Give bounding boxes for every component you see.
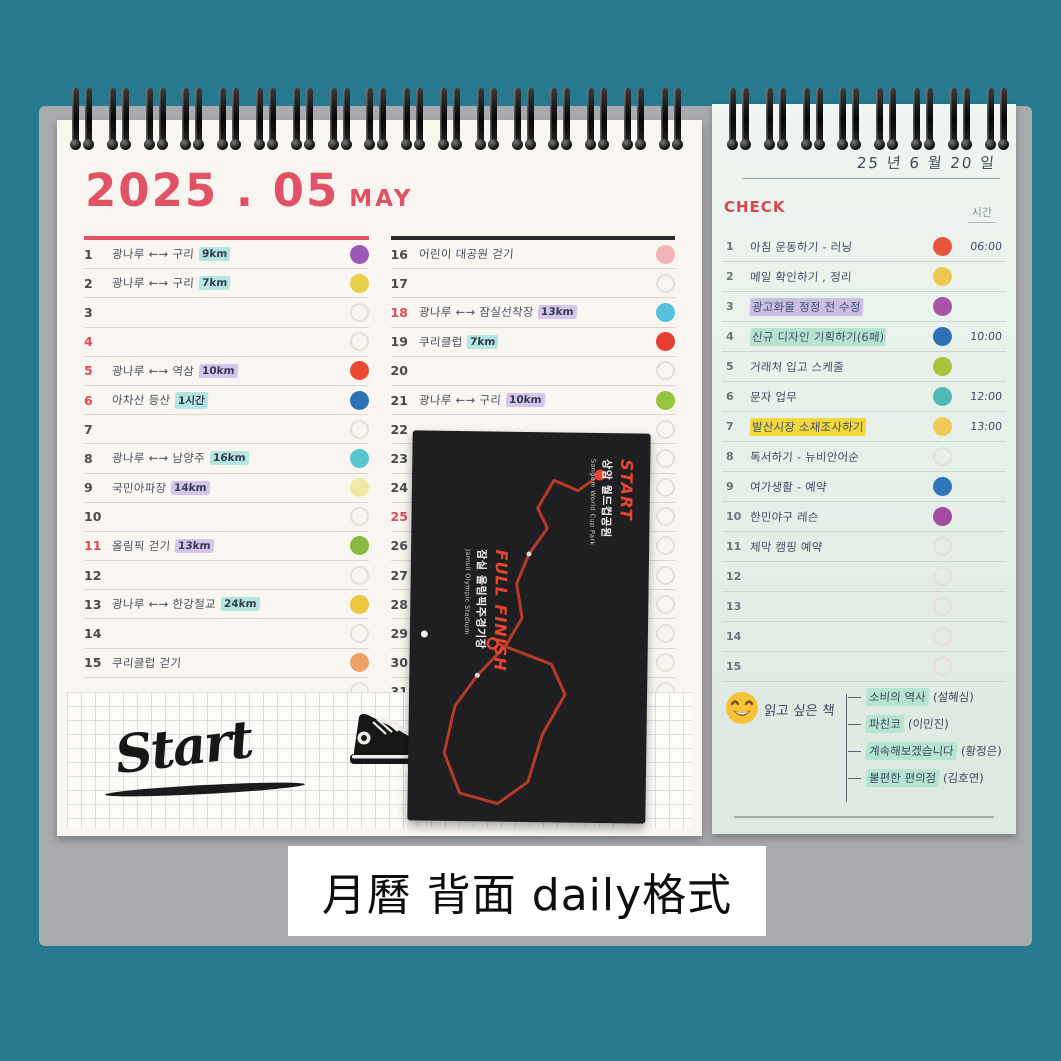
ring-bar [366, 88, 373, 144]
ring-bar [343, 88, 350, 144]
empty-circle [933, 537, 952, 556]
calendar-entry-text: 광나루 ←→ 구리 [111, 246, 194, 262]
binding-ring [146, 88, 168, 150]
distance-highlight-badge: 1시간 [175, 392, 209, 409]
calendar-day-number: 3 [84, 305, 112, 320]
colored-sticker-dot [933, 237, 952, 256]
daily-row: 2메일 확인하기 , 정리 [722, 262, 1006, 292]
ring-bar [416, 88, 423, 144]
calendar-entry-text: 아차산 등산 [111, 392, 170, 408]
daily-row: 8독서하기 - 뉴비안어순 [722, 442, 1006, 472]
empty-circle [656, 595, 675, 614]
ring-bar [766, 88, 773, 144]
colored-sticker-dot [933, 357, 952, 376]
daily-entry-text: 문자 업무 [749, 389, 797, 405]
calendar-row: 18광나루 ←→ 잠실선착장13km [391, 298, 676, 327]
ring-bar [674, 88, 681, 144]
daily-row: 10한민야구 레슨 [722, 502, 1006, 532]
calendar-entry-text: 광나루 ←→ 남양주 [111, 450, 205, 466]
daily-row: 12 [722, 562, 1006, 592]
empty-circle [933, 657, 952, 676]
empty-circle [656, 478, 675, 497]
binding-ring [587, 88, 609, 150]
daily-entry-text: 독서하기 - 뉴비안어순 [749, 449, 859, 465]
calendar-day-number: 19 [391, 334, 419, 349]
colored-sticker-dot [656, 332, 675, 351]
binding-ring [839, 88, 861, 150]
daily-row-number: 3 [726, 300, 750, 313]
empty-circle [656, 624, 675, 643]
ring-bar [661, 88, 668, 144]
ring-bar [987, 88, 994, 144]
daily-time-value: 12:00 [951, 390, 1002, 403]
calendar-row: 14 [84, 619, 369, 648]
colored-sticker-dot [350, 245, 369, 264]
calendar-year-month: 2025 . 05 [85, 164, 339, 217]
binding-ring [913, 88, 935, 150]
daily-entry-text: 제막 캠핑 예약 [749, 539, 823, 555]
calendar-day-number: 16 [391, 247, 419, 262]
colored-sticker-dot [933, 387, 952, 406]
colored-sticker-dot [350, 361, 369, 380]
calendar-month-name: MAY [349, 186, 413, 212]
calendar-entry-text: 올림픽 걷기 [111, 538, 170, 554]
daily-row-number: 12 [726, 570, 750, 583]
daily-entry-text: 한민야구 레슨 [749, 509, 819, 525]
binding-ring [219, 88, 241, 150]
daily-row-number: 13 [726, 600, 750, 613]
ring-bar [637, 88, 644, 144]
empty-circle [656, 449, 675, 468]
calendar-row: 1광나루 ←→ 구리9km [84, 240, 369, 269]
colored-sticker-dot [656, 303, 675, 322]
daily-entry-text: 광고화물 정정 전 수정 [749, 298, 863, 316]
ring-bar [195, 88, 202, 144]
ring-bar [876, 88, 883, 144]
calendar-entry-text: 광나루 ←→ 잠실선착장 [418, 304, 534, 320]
daily-entry-text: 발산시장 소재조사하기 [749, 418, 866, 436]
calendar-row: 2광나루 ←→ 구리7km [84, 269, 369, 298]
empty-circle [350, 624, 369, 643]
calendar-day-number: 4 [84, 334, 112, 349]
ring-bar [122, 88, 129, 144]
ring-bar [306, 88, 313, 144]
calendar-day-number: 8 [84, 451, 112, 466]
calendar-day-number: 12 [84, 568, 112, 583]
ring-bar [742, 88, 749, 144]
distance-highlight-badge: 24km [220, 597, 260, 611]
binding-ring [624, 88, 646, 150]
daily-row-number: 2 [726, 270, 750, 283]
colored-sticker-dot [933, 417, 952, 436]
book-title: 소비의 역사 [865, 688, 929, 706]
binding-ring [876, 88, 898, 150]
colored-sticker-dot [350, 536, 369, 555]
calendar-entry-text: 광나루 ←→ 역삼 [111, 363, 194, 379]
bracket-tick [848, 697, 861, 698]
ring-bar [852, 88, 859, 144]
race-card-rotated-content: START 상암 월드컵공원 Sangam World Cup Park FUL… [407, 430, 650, 823]
binding-ring [729, 88, 751, 150]
colored-sticker-dot [350, 653, 369, 672]
calendar-entry-text: 광나루 ←→ 구리 [418, 392, 501, 408]
ring-bar [403, 88, 410, 144]
calendar-day-number: 6 [84, 393, 112, 408]
empty-circle [933, 567, 952, 586]
binding-ring [403, 88, 425, 150]
calendar-entry-text: 광나루 ←→ 한강철교 [111, 596, 216, 612]
laughing-emoji-sticker [724, 690, 760, 730]
book-author: (이민진) [907, 716, 949, 732]
ring-bar [950, 88, 957, 144]
race-finish-block: FULL FINISH 잠실 올림픽주경기장 Jamsil Olympic St… [462, 549, 511, 672]
ring-bar [293, 88, 300, 144]
colored-sticker-dot [656, 245, 675, 264]
caption-box: 月曆 背面 daily格式 [288, 846, 766, 936]
calendar-entry-text: 쿠리클럽 걷기 [111, 655, 181, 671]
empty-circle [656, 274, 675, 293]
race-start-block: START 상암 월드컵공원 Sangam World Cup Park [588, 459, 636, 546]
calendar-row: 10 [84, 503, 369, 532]
empty-circle [656, 536, 675, 555]
colored-sticker-dot [350, 478, 369, 497]
reading-list-section: 읽고 싶은 책 소비의 역사(설혜심)파친코(이민진)계속해보겠습니다(황정은)… [722, 682, 1008, 822]
colored-sticker-dot [656, 391, 675, 410]
calendar-row: 8광나루 ←→ 남양주16km [84, 444, 369, 473]
daily-row: 7발산시장 소재조사하기13:00 [722, 412, 1006, 442]
empty-circle [656, 361, 675, 380]
daily-entry-text: 아침 운동하기 - 러닝 [749, 239, 852, 255]
book-title: 계속해보겠습니다 [865, 742, 957, 760]
distance-highlight-badge: 14km [171, 481, 211, 495]
empty-circle [656, 566, 675, 585]
daily-planner-page: 25 년 6 월 20 일 CHECK 시간 1아침 운동하기 - 러닝06:0… [712, 104, 1016, 834]
calendar-column-1-15: 1광나루 ←→ 구리9km2광나루 ←→ 구리7km345광나루 ←→ 역삼10… [84, 236, 369, 707]
distance-highlight-badge: 13km [175, 539, 215, 553]
distance-highlight-badge: 13km [538, 305, 578, 319]
colored-sticker-dot [350, 274, 369, 293]
distance-highlight-badge: 7km [467, 335, 499, 349]
daily-check-label: CHECK [724, 198, 785, 216]
daily-entry-text: 거래처 입고 스케줄 [749, 359, 844, 375]
ring-bar [563, 88, 570, 144]
race-start-label: START [616, 459, 636, 546]
distance-highlight-badge: 10km [505, 393, 545, 407]
empty-circle [350, 420, 369, 439]
calendar-row: 20 [391, 357, 676, 386]
calendar-day-number: 9 [84, 480, 112, 495]
book-item: 소비의 역사(설혜심) [848, 688, 973, 706]
caption-text: 月曆 背面 daily格式 [322, 859, 732, 923]
book-author: (황정은) [960, 743, 1002, 759]
empty-circle [933, 597, 952, 616]
calendar-day-number: 15 [84, 655, 112, 670]
ring-bar [490, 88, 497, 144]
distance-highlight-badge: 10km [199, 364, 239, 378]
daily-entry-text: 여가생활 - 예약 [749, 479, 827, 495]
daily-row-number: 1 [726, 240, 750, 253]
calendar-row: 17 [391, 269, 676, 298]
calendar-row: 6아차산 등산1시간 [84, 386, 369, 415]
binding-ring [514, 88, 536, 150]
race-start-place-en: Sangam World Cup Park [588, 459, 597, 546]
calendar-day-number: 1 [84, 247, 112, 262]
calendar-row: 12 [84, 561, 369, 590]
calendar-day-number: 21 [391, 393, 419, 408]
ring-bar [219, 88, 226, 144]
empty-circle [350, 332, 369, 351]
calendar-title: 2025 . 05MAY [85, 164, 413, 217]
binding-ring [330, 88, 352, 150]
daily-row: 13 [722, 592, 1006, 622]
bracket-tick [848, 724, 861, 725]
calendar-row: 15쿠리클럽 걷기 [84, 649, 369, 678]
ring-bar [527, 88, 534, 144]
binding-ring [550, 88, 572, 150]
ring-bar [269, 88, 276, 144]
calendar-day-number: 10 [84, 509, 112, 524]
ring-bar [839, 88, 846, 144]
ring-bar [440, 88, 447, 144]
calendar-entry-text: 어린이 대공원 걷기 [418, 246, 514, 262]
book-item: 불편한 편의점(김호연) [848, 769, 984, 787]
ring-bar [729, 88, 736, 144]
daily-entry-text: 메일 확인하기 , 정리 [749, 269, 852, 285]
empty-circle [933, 627, 952, 646]
calendar-day-number: 17 [391, 276, 419, 291]
binding-ring [256, 88, 278, 150]
reading-list-bracket [846, 694, 847, 802]
empty-circle [350, 566, 369, 585]
colored-sticker-dot [933, 507, 952, 526]
daily-row-number: 5 [726, 360, 750, 373]
race-course-card: START 상암 월드컵공원 Sangam World Cup Park FUL… [407, 430, 650, 823]
ring-bar [159, 88, 166, 144]
binding-ring [661, 88, 683, 150]
daily-row-number: 14 [726, 630, 750, 643]
daily-row-number: 15 [726, 660, 750, 673]
ring-bar [926, 88, 933, 144]
ring-bar [146, 88, 153, 144]
colored-sticker-dot [933, 327, 952, 346]
ring-bar [477, 88, 484, 144]
daily-row: 15 [722, 652, 1006, 682]
ring-bar [182, 88, 189, 144]
daily-time-column-label: 시간 [968, 204, 996, 223]
calendar-row: 9국민아파장14km [84, 474, 369, 503]
ring-bar [453, 88, 460, 144]
race-finish-label: FULL FINISH [490, 549, 511, 671]
ring-bar [232, 88, 239, 144]
ring-bar [85, 88, 92, 144]
calendar-day-number: 13 [84, 597, 112, 612]
empty-circle [933, 447, 952, 466]
binding-ring [109, 88, 131, 150]
daily-row: 14 [722, 622, 1006, 652]
colored-sticker-dot [933, 297, 952, 316]
binding-ring [440, 88, 462, 150]
ring-bar [963, 88, 970, 144]
ring-bar [72, 88, 79, 144]
calendar-day-number: 18 [391, 305, 419, 320]
calendar-row: 7 [84, 415, 369, 444]
book-title: 불편한 편의점 [865, 769, 939, 787]
daily-time-value: 13:00 [951, 420, 1002, 433]
colored-sticker-dot [350, 391, 369, 410]
race-start-place-ko: 상암 월드컵공원 [598, 459, 615, 546]
book-author: (김호연) [943, 770, 985, 786]
distance-highlight-badge: 16km [210, 451, 250, 465]
binding-ring [477, 88, 499, 150]
ring-bar [779, 88, 786, 144]
empty-circle [656, 420, 675, 439]
daily-row: 6문자 업무12:00 [722, 382, 1006, 412]
race-finish-place-en: Jamsil Olympic Stadium [462, 549, 472, 671]
calendar-row: 19쿠리클럽7km [391, 328, 676, 357]
calendar-day-number: 20 [391, 363, 419, 378]
binding-ring [72, 88, 94, 150]
calendar-row: 13광나루 ←→ 한강철교24km [84, 590, 369, 619]
binding-ring [987, 88, 1009, 150]
reading-list-title: 읽고 싶은 책 [763, 699, 835, 719]
daily-row-number: 6 [726, 390, 750, 403]
daily-entry-text: 신규 디자인 기획하기(6페) [749, 328, 887, 346]
daily-date-handwritten: 25 년 6 월 20 일 [856, 152, 997, 173]
daily-row: 9여가생활 - 예약 [722, 472, 1006, 502]
colored-sticker-dot [350, 449, 369, 468]
empty-circle [656, 653, 675, 672]
calendar-day-number: 11 [84, 538, 112, 553]
ring-bar [330, 88, 337, 144]
bracket-tick [848, 751, 861, 752]
ring-bar [624, 88, 631, 144]
race-finish-place-ko: 잠실 올림픽주경기장 [472, 549, 490, 671]
ring-bar [587, 88, 594, 144]
calendar-day-number: 7 [84, 422, 112, 437]
daily-row: 1아침 운동하기 - 러닝06:00 [722, 232, 1006, 262]
calendar-day-number: 2 [84, 276, 112, 291]
ring-bar [803, 88, 810, 144]
daily-row-number: 11 [726, 540, 750, 553]
colored-sticker-dot [350, 595, 369, 614]
ring-bar [256, 88, 263, 144]
daily-bottom-rule [734, 816, 994, 818]
bracket-tick [848, 778, 861, 779]
daily-row: 4신규 디자인 기획하기(6페)10:00 [722, 322, 1006, 352]
daily-row-number: 8 [726, 450, 750, 463]
distance-highlight-badge: 9km [199, 247, 231, 261]
calendar-row: 4 [84, 328, 369, 357]
calendar-day-number: 5 [84, 363, 112, 378]
daily-row-number: 10 [726, 510, 750, 523]
daily-check-list: 1아침 운동하기 - 러닝06:002메일 확인하기 , 정리3광고화물 정정 … [722, 232, 1006, 682]
daily-time-value: 10:00 [951, 330, 1002, 343]
daily-row-number: 9 [726, 480, 750, 493]
ring-bar [514, 88, 521, 144]
empty-circle [350, 507, 369, 526]
ring-bar [1000, 88, 1007, 144]
binding-ring [803, 88, 825, 150]
ring-bar [109, 88, 116, 144]
calendar-row: 5광나루 ←→ 역삼10km [84, 357, 369, 386]
colored-sticker-dot [933, 477, 952, 496]
daily-date-underline [742, 178, 1000, 179]
binding-ring [766, 88, 788, 150]
binding-ring [950, 88, 972, 150]
colored-sticker-dot [933, 267, 952, 286]
ring-bar [889, 88, 896, 144]
calendar-row: 21광나루 ←→ 구리10km [391, 386, 676, 415]
binding-ring [182, 88, 204, 150]
calendar-entry-text: 국민아파장 [111, 480, 167, 496]
calendar-row: 3 [84, 298, 369, 327]
empty-circle [350, 303, 369, 322]
distance-highlight-badge: 7km [199, 276, 231, 290]
book-item: 계속해보겠습니다(황정은) [848, 742, 1001, 760]
calendar-entry-text: 쿠리클럽 [418, 334, 463, 350]
empty-circle [656, 507, 675, 526]
calendar-row: 16어린이 대공원 걷기 [391, 240, 676, 269]
daily-row-number: 7 [726, 420, 750, 433]
book-title: 파친코 [865, 715, 904, 733]
daily-row: 3광고화물 정정 전 수정 [722, 292, 1006, 322]
calendar-day-number: 14 [84, 626, 112, 641]
book-item: 파친코(이민진) [848, 715, 948, 733]
ring-bar [379, 88, 386, 144]
binding-ring [366, 88, 388, 150]
daily-row-number: 4 [726, 330, 750, 343]
daily-row: 5거래처 입고 스케줄 [722, 352, 1006, 382]
ring-bar [600, 88, 607, 144]
calendar-entry-text: 광나루 ←→ 구리 [111, 275, 194, 291]
daily-row: 11제막 캠핑 예약 [722, 532, 1006, 562]
book-author: (설혜심) [932, 689, 974, 705]
binding-ring [293, 88, 315, 150]
daily-time-value: 06:00 [951, 240, 1002, 253]
ring-bar [550, 88, 557, 144]
ring-bar [913, 88, 920, 144]
ring-bar [816, 88, 823, 144]
monthly-calendar-page: 2025 . 05MAY 1광나루 ←→ 구리9km2광나루 ←→ 구리7km3… [57, 120, 702, 836]
calendar-row: 11올림픽 걷기13km [84, 532, 369, 561]
